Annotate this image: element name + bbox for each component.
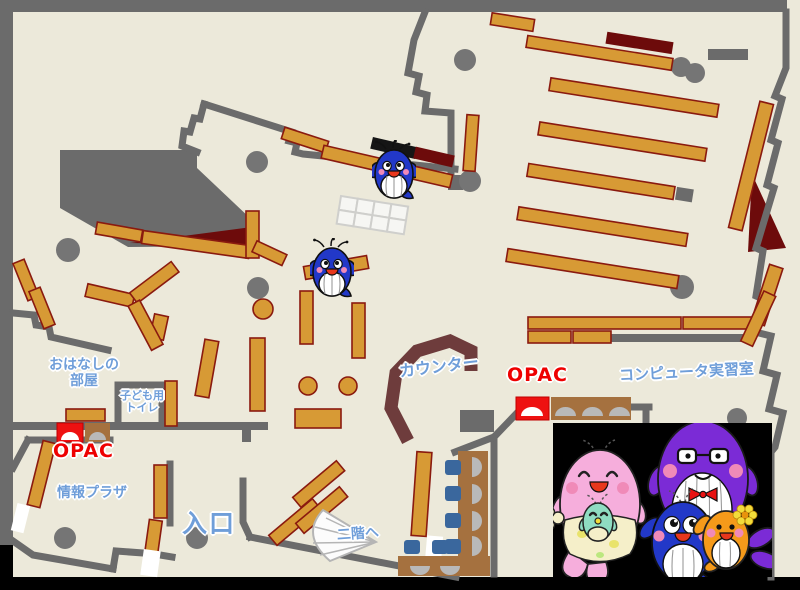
chair-icon [404, 540, 420, 554]
chair-icon [432, 540, 448, 554]
label-info-plaza: 情報プラザ [57, 486, 127, 502]
pillar-icon [54, 527, 76, 549]
chair-icon [445, 513, 461, 528]
chair-icon [445, 460, 461, 475]
library-floor-map: おはなしの 部屋 子ども用 トイレ OPAC 情報プラザ 入口 二階へ カウンタ… [0, 0, 800, 590]
label-line: トイレ [126, 401, 159, 414]
label-line: 部屋 [70, 373, 98, 389]
bookshelf [538, 122, 707, 161]
pillar-icon [685, 63, 705, 83]
round-table [299, 377, 317, 395]
label-kids-toilet: 子ども用 トイレ [112, 390, 172, 415]
label-entrance: 入口 [182, 510, 236, 538]
border-top [0, 0, 787, 12]
bookshelf [27, 441, 56, 508]
pillar-icon [56, 238, 80, 262]
bookshelf [130, 262, 179, 304]
bookshelf [85, 284, 135, 307]
counter-back-cabinet [460, 410, 494, 432]
bookshelf [573, 331, 611, 343]
pillar-icon [247, 277, 269, 299]
whale-marker-icon [305, 238, 358, 297]
label-opac-left: OPAC [53, 441, 114, 462]
bookshelf [352, 303, 365, 358]
pillar-icon [454, 49, 476, 71]
bookshelf [252, 241, 287, 266]
study-table-grid [337, 196, 409, 234]
bookshelf [195, 339, 219, 398]
carrel-desks [398, 451, 490, 576]
label-opac-right: OPAC [507, 365, 568, 386]
table [295, 409, 341, 428]
bookshelf [528, 317, 681, 329]
label-storytelling-room: おはなしの 部屋 [36, 358, 132, 389]
bookshelf [463, 115, 479, 172]
opac-terminal-right [516, 397, 631, 420]
bookshelf [154, 465, 167, 518]
pacifier-icon [595, 518, 601, 524]
round-table [339, 377, 357, 395]
label-line: おはなしの [49, 357, 119, 373]
bookshelf [66, 409, 105, 421]
bookshelf [683, 317, 754, 329]
bookshelf [490, 13, 534, 32]
label-to-second-floor: 二階へ [337, 526, 380, 545]
bookshelf [411, 452, 432, 537]
bookshelf [527, 163, 675, 199]
bookshelf [517, 207, 688, 247]
border-bottom [0, 577, 800, 590]
bookshelf [281, 127, 328, 153]
bookshelf [300, 291, 313, 344]
bookshelf [528, 331, 571, 343]
pillar-icon [459, 170, 481, 192]
bookshelf [250, 338, 265, 411]
bookshelf [506, 249, 679, 289]
bookshelf [549, 78, 719, 117]
pillar-icon [246, 151, 268, 173]
chair-icon [445, 486, 461, 501]
round-table [253, 299, 273, 319]
